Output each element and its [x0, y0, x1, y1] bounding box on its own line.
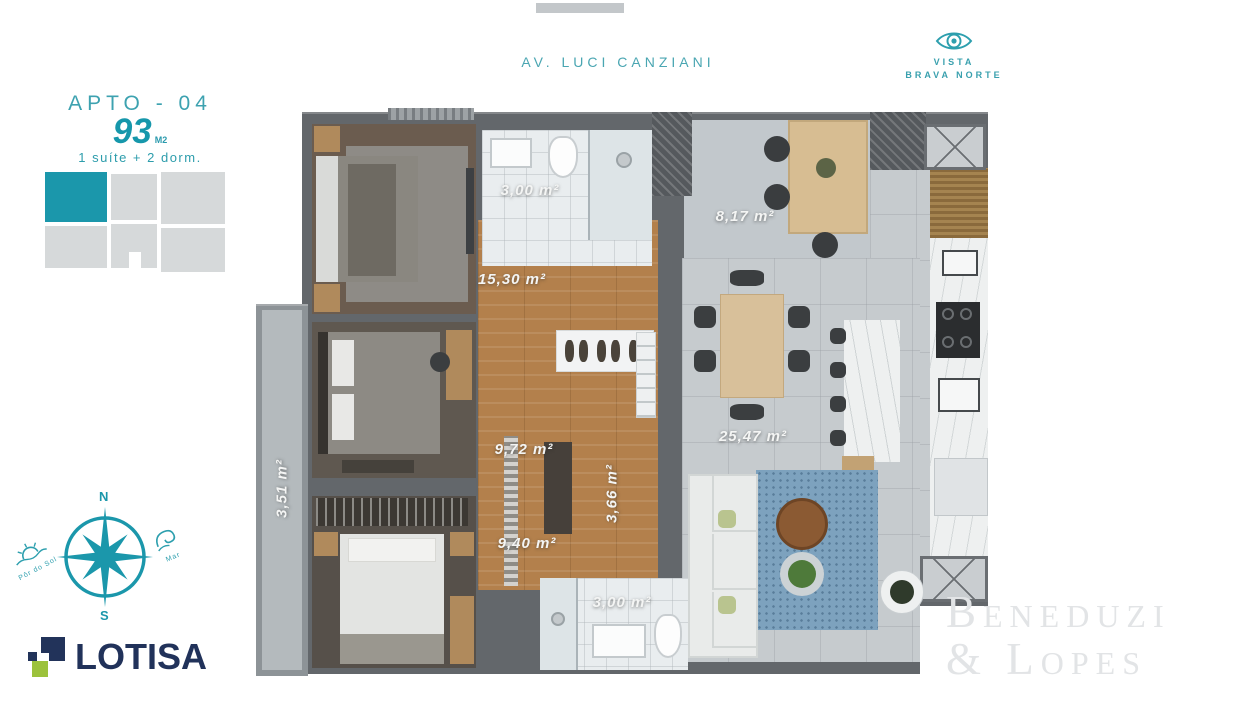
- room-living: [682, 258, 920, 662]
- desk: [446, 330, 472, 400]
- keyplan-unit: [161, 228, 225, 272]
- kitchen-appliance: [934, 458, 988, 516]
- watermark-line1: Beneduzi: [946, 590, 1226, 635]
- dining-chair: [730, 404, 764, 420]
- kitchen-cabinet-wood: [930, 168, 988, 238]
- coffee-table: [776, 498, 828, 550]
- shower-area: [588, 130, 652, 240]
- nightstand: [450, 532, 474, 556]
- area-label-hall-small: 3,66 m²: [604, 449, 621, 539]
- bed-blanket: [340, 634, 444, 664]
- terrace-chair: [764, 136, 790, 162]
- shower-head: [616, 152, 632, 168]
- island-stool: [830, 430, 846, 446]
- kitchen-sink-2: [938, 378, 980, 412]
- plant: [788, 560, 816, 588]
- island-stool: [830, 396, 846, 412]
- tv-panel: [466, 168, 474, 254]
- vent-hatch: [388, 108, 474, 120]
- keyplan-unit: [161, 172, 225, 224]
- area-label-hall-top: 15,30 m²: [467, 271, 557, 288]
- nightstand: [314, 532, 338, 556]
- dining-chair: [788, 306, 810, 328]
- kitchen-island: [844, 320, 900, 462]
- wardrobe-rail: [504, 436, 518, 586]
- compass-rose-icon: [55, 507, 155, 607]
- grill-box: [924, 124, 986, 170]
- area-label-hall-mid: 9,72 m²: [479, 441, 569, 458]
- toilet: [548, 136, 578, 178]
- lotisa-logo-text: LOTISA: [75, 636, 207, 678]
- watermark: Beneduzi & Lopes: [946, 590, 1226, 682]
- lotisa-logo-icon: [28, 637, 68, 677]
- floorplan-page: AV. LUCI CANZIANI VISTA BRAVA NORTE APTO…: [0, 0, 1240, 720]
- compass-north-label: N: [99, 489, 108, 504]
- vista-badge: VISTA BRAVA NORTE: [896, 28, 1012, 80]
- area-label-living: 25,47 m²: [708, 428, 798, 445]
- side-plant: [890, 580, 914, 604]
- cooktop: [936, 302, 980, 358]
- keyplan-unit-selected: [45, 172, 107, 222]
- desk: [450, 596, 474, 664]
- apartment-area: 93M2: [40, 112, 240, 152]
- duct-shaft: [652, 112, 692, 196]
- bed-headboard: [318, 332, 328, 454]
- service-shaft: [870, 112, 926, 170]
- floorplan: 3,00 m² 8,17 m² 15,30 m² 9,72 m² 3,66 m²…: [256, 108, 988, 674]
- keyplan-notch: [129, 252, 141, 268]
- bed-throw: [348, 164, 396, 276]
- pillow: [332, 340, 354, 386]
- living-rug: [756, 470, 878, 630]
- dining-chair: [730, 270, 764, 286]
- room-bedroom-3: [312, 496, 476, 668]
- desk-chair: [430, 352, 450, 372]
- island-stool: [830, 328, 846, 344]
- area-label-hall-bottom: 9,40 m²: [482, 535, 572, 552]
- street-label: AV. LUCI CANZIANI: [438, 54, 798, 70]
- lotisa-logo: LOTISA: [28, 636, 207, 678]
- wardrobe: [316, 498, 468, 526]
- dining-table: [720, 294, 784, 398]
- nightstand: [314, 284, 340, 312]
- pillow: [348, 538, 436, 562]
- nightstand: [314, 126, 340, 152]
- area-label-balcony: 3,51 m²: [274, 444, 291, 534]
- bed-pillows: [316, 156, 338, 282]
- toilet: [654, 614, 682, 658]
- island-stool: [830, 362, 846, 378]
- keyplan: [45, 172, 225, 272]
- vista-label-line2: BRAVA NORTE: [896, 70, 1012, 80]
- terrace-chair: [764, 184, 790, 210]
- pillow: [332, 394, 354, 440]
- sunset-indicator: Pôr do Sol: [4, 532, 59, 584]
- eye-icon: [935, 28, 973, 54]
- keyplan-unit: [45, 226, 107, 268]
- apartment-subtitle: 1 suíte + 2 dorm.: [40, 150, 240, 165]
- room-bedroom-2: [312, 322, 476, 478]
- kitchen-sink: [942, 250, 978, 276]
- compass-south-label: S: [100, 608, 109, 623]
- dining-chair: [694, 306, 716, 328]
- bathroom-sink: [592, 624, 646, 658]
- dining-chair: [694, 350, 716, 372]
- room-suite: [312, 124, 476, 314]
- vista-label-line1: VISTA: [896, 57, 1012, 67]
- sofa: [688, 474, 758, 658]
- table-plant: [816, 158, 836, 178]
- area-number: 93: [113, 112, 152, 151]
- shower-head: [551, 612, 565, 626]
- dining-chair: [788, 350, 810, 372]
- bathroom-sink: [490, 138, 532, 168]
- area-label-terrace: 8,17 m²: [700, 208, 790, 225]
- area-label-bathroom-top: 3,00 m²: [485, 182, 575, 199]
- bench: [342, 460, 414, 473]
- keyplan-unit: [111, 174, 157, 220]
- room-bathroom-bottom: [540, 578, 688, 670]
- terrace-chair: [812, 232, 838, 258]
- top-crop-bar: [536, 3, 624, 13]
- area-label-bathroom-bottom: 3,00 m²: [577, 594, 667, 611]
- room-terrace: [684, 120, 870, 258]
- watermark-line2: & Lopes: [946, 637, 1226, 682]
- area-unit: M2: [155, 135, 168, 145]
- closet-shelves: [636, 332, 656, 418]
